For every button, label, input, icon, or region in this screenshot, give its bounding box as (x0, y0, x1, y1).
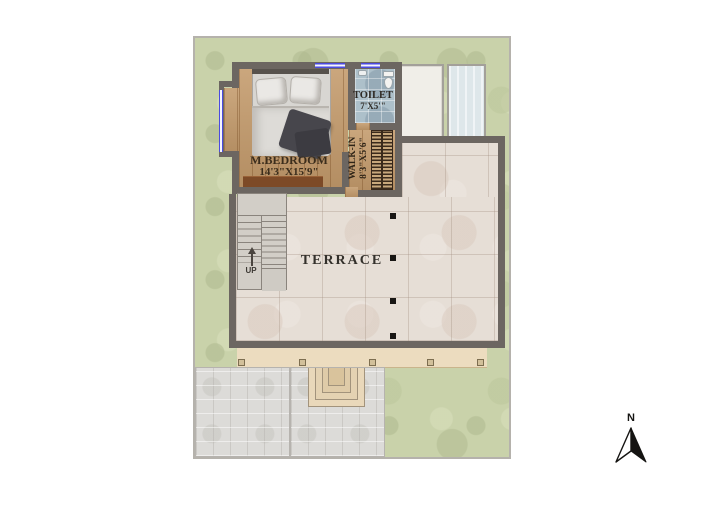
up-arrow-icon (251, 253, 253, 266)
stair-treads-left (238, 215, 261, 263)
pillow (255, 77, 288, 107)
porch-post (238, 359, 245, 366)
paving-left (195, 367, 290, 457)
bedroom-bay-floor (224, 88, 239, 153)
wall-terrace-right (498, 136, 505, 348)
wall-terrace-top (402, 136, 505, 143)
toilet-basin (358, 70, 367, 76)
terrace-label: TERRACE (292, 253, 392, 269)
pillow (289, 76, 322, 105)
north-arrow-icon (613, 426, 649, 464)
column (390, 213, 396, 219)
toilet-window (361, 63, 380, 68)
bedroom-dims: 14'3"X15'9" (243, 166, 335, 178)
porch-strip (237, 348, 487, 368)
wall-terrace-bottom (229, 341, 505, 348)
porch-post (299, 359, 306, 366)
wall-terrace-left (229, 194, 236, 348)
porch-post (477, 359, 484, 366)
bed-headboard (252, 69, 329, 74)
wall-right (395, 62, 402, 197)
column (390, 298, 396, 304)
porch-post (369, 359, 376, 366)
wardrobe (371, 130, 393, 190)
door-opening-bedroom (345, 187, 358, 197)
terrace-floor-upper (402, 143, 498, 199)
column (390, 333, 396, 339)
stair-treads-right (262, 215, 286, 269)
skylight-panel (447, 64, 486, 139)
walkin-label: WALK-IN 8'3"X5'6" (348, 128, 370, 188)
walkin-dims: 8'3"X5'6" (359, 128, 370, 188)
entry-step (328, 368, 345, 386)
stairs-up-label: UP (241, 266, 261, 275)
walkin-name: WALK-IN (348, 128, 359, 188)
porch-post (427, 359, 434, 366)
north-label: N (613, 412, 649, 424)
stair-landing (262, 268, 286, 291)
floor-plan-canvas: UP TERRACE M.BEDROOM 14'3"X15'9" TOILET … (0, 0, 715, 512)
bay-window (219, 90, 223, 152)
toilet-dims: 7'X5'" (350, 101, 396, 111)
toilet-label: TOILET (350, 90, 396, 101)
roof-panel (397, 64, 444, 139)
up-arrow-head-icon (248, 247, 256, 254)
bedroom-window (315, 63, 345, 68)
